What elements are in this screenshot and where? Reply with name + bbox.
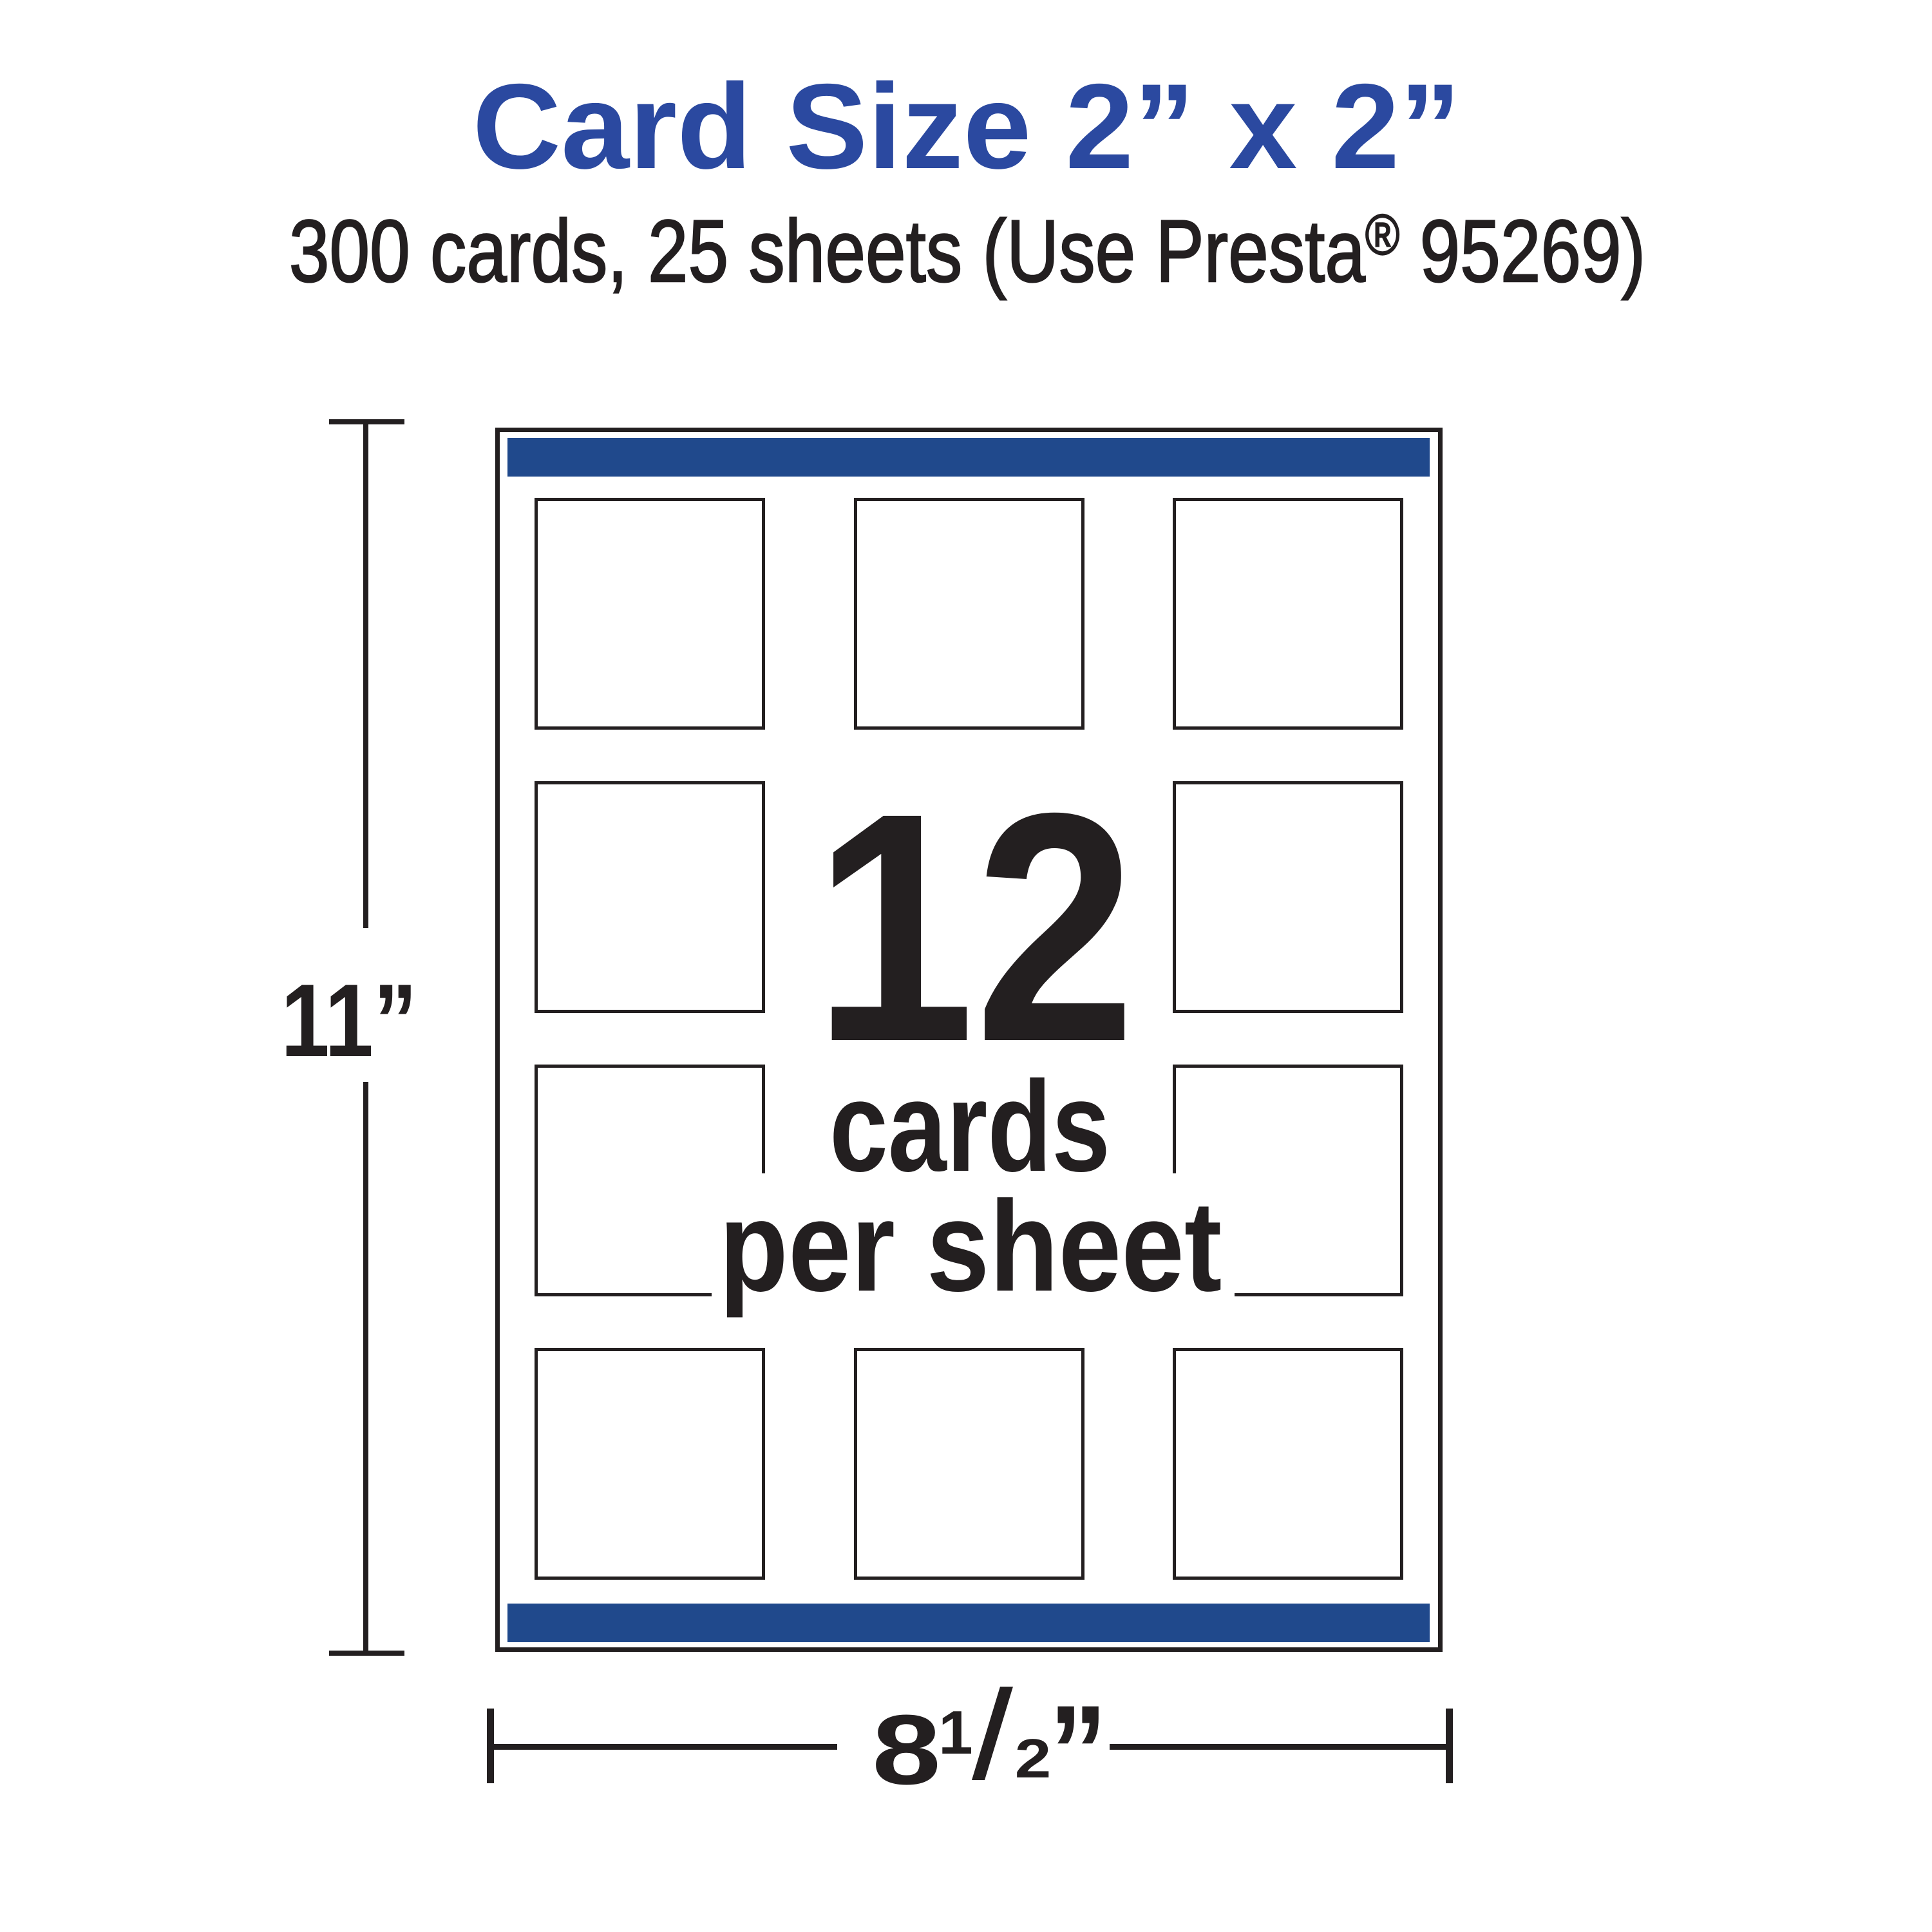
svg-text:11”: 11” — [281, 962, 417, 1078]
svg-text:Card Size 2” x 2”: Card Size 2” x 2” — [473, 59, 1461, 194]
svg-text:2: 2 — [1015, 1728, 1052, 1789]
svg-text:8: 8 — [872, 1694, 941, 1804]
svg-text:per sheet: per sheet — [719, 1174, 1222, 1318]
svg-text:300 cards, 25 sheets (Use Pres: 300 cards, 25 sheets (Use Presta® 95269) — [289, 201, 1645, 300]
svg-text:1: 1 — [938, 1698, 972, 1767]
svg-text:”: ” — [1049, 1678, 1107, 1825]
